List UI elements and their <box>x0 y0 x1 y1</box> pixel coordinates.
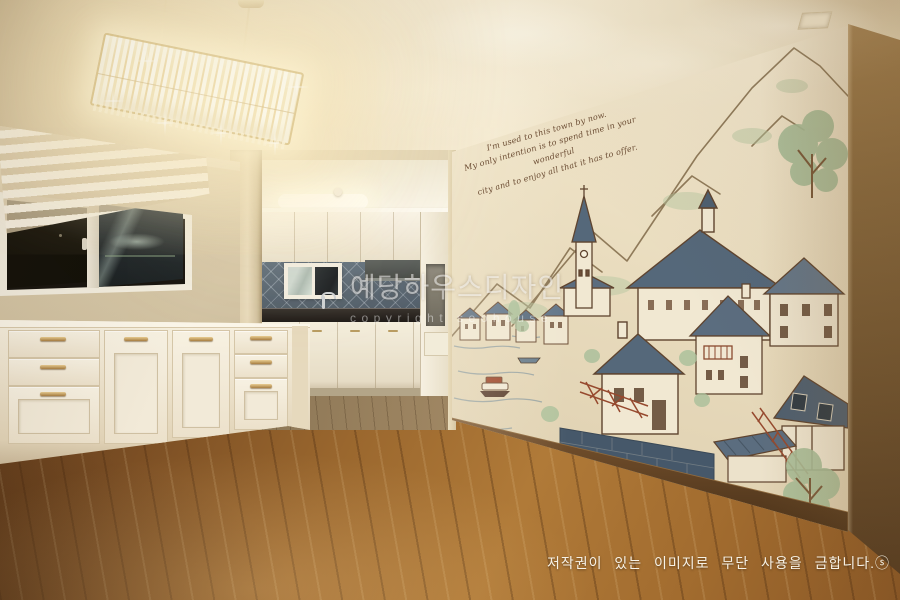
kitchen-window-pane-left <box>288 267 312 295</box>
drawer <box>8 386 100 444</box>
drawer <box>234 378 288 430</box>
door-handle <box>189 337 213 341</box>
faucet <box>322 296 325 309</box>
door-panel <box>182 353 220 428</box>
range-hood <box>365 260 420 281</box>
ceiling-sensor <box>334 188 342 196</box>
chandelier-ceiling-mount <box>238 0 264 8</box>
ceiling-vent <box>797 11 832 30</box>
tall-cabinet-drawer <box>424 332 449 356</box>
copyright-notice: 저작권이 있는 이미지로 무단 사용을 금합니다.ⓢ <box>547 553 890 573</box>
cabinet-handle <box>388 330 398 332</box>
kitchen-window-pane-right <box>315 267 338 295</box>
oven-niche <box>426 264 445 326</box>
drawer-handle <box>250 336 272 340</box>
living-room-photo: I'm used to this town by now. My only in… <box>0 0 900 600</box>
cabinet-door <box>172 330 230 438</box>
cabinet-handle <box>312 330 322 332</box>
door-panel <box>114 353 158 434</box>
cabinet-handle <box>350 330 360 332</box>
drawer <box>8 358 100 386</box>
window-handle <box>82 238 87 250</box>
chandelier-frame-bar <box>98 72 294 113</box>
cabinet-door <box>104 330 168 444</box>
drawer-handle <box>250 384 272 388</box>
drawer <box>234 330 288 354</box>
drawer-handle <box>40 365 66 369</box>
tall-cabinet <box>420 212 449 398</box>
right-wall <box>845 22 900 574</box>
drawer-panel <box>18 399 90 434</box>
door-handle <box>124 337 148 341</box>
drawer-panel <box>244 391 278 420</box>
drawer <box>234 354 288 378</box>
drawer <box>8 330 100 358</box>
copyright-notice-text: 저작권이 있는 이미지로 무단 사용을 금합니다. <box>547 555 875 571</box>
kitchen-ceiling-light <box>278 194 368 209</box>
drawer-handle <box>40 337 66 341</box>
drawer-handle <box>40 392 66 396</box>
sideboard-end-panel <box>292 326 308 428</box>
copyright-notice-mark: ⓢ <box>875 555 890 571</box>
window-pane-right <box>99 203 183 287</box>
drawer-handle <box>250 360 272 364</box>
